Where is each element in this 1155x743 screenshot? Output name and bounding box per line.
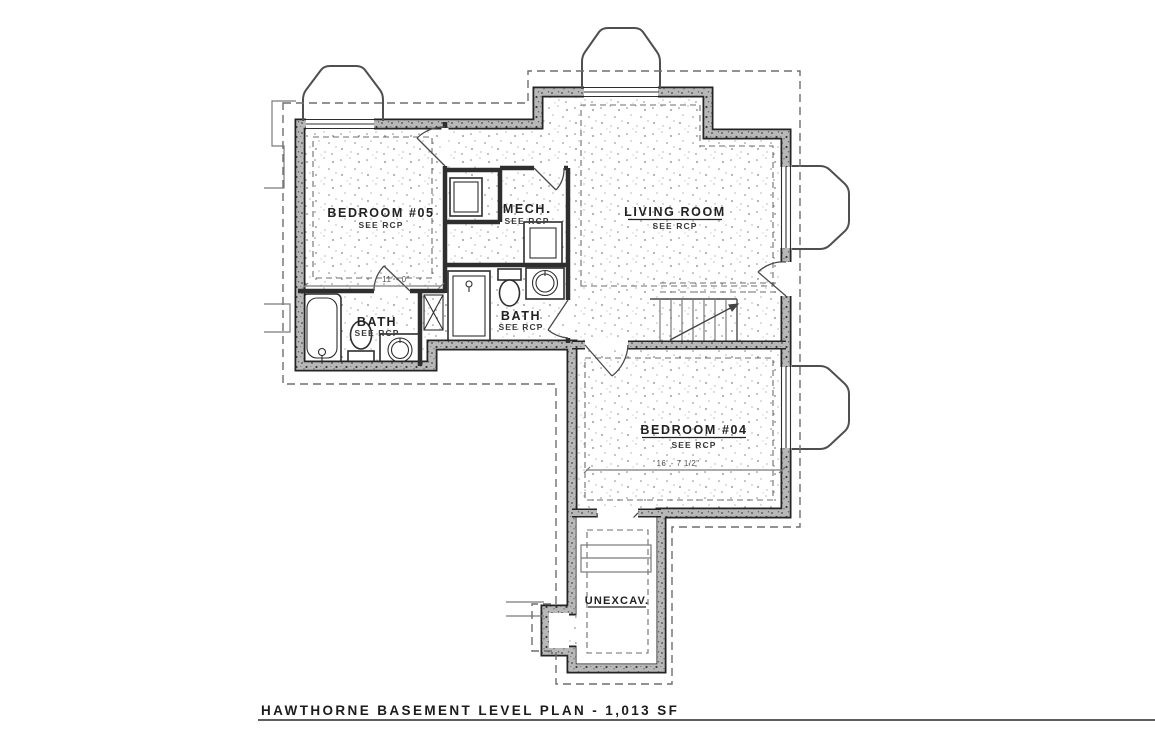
- drawing-sheet: 11' - 0" 16' - 7 1/2" BEDROOM #05 SEE RC…: [0, 0, 1155, 743]
- sink-center-fixture: [526, 268, 564, 299]
- room-label-living-room: LIVING ROOM: [624, 205, 726, 219]
- room-note-living-room: SEE RCP: [652, 221, 697, 231]
- room-label-bath-center: BATH: [501, 309, 541, 323]
- toilet-center-fixture: [498, 269, 521, 306]
- room-note-bath-left: SEE RCP: [354, 328, 399, 338]
- floor-plan-svg: 11' - 0" 16' - 7 1/2" BEDROOM #05 SEE RC…: [0, 0, 1155, 743]
- room-label-mech: MECH.: [503, 202, 551, 216]
- dim-bedroom04-label: 16' - 7 1/2": [657, 459, 700, 468]
- unexcavated-area: [506, 518, 657, 664]
- water-heater-fixture: [450, 178, 482, 216]
- title-block: HAWTHORNE BASEMENT LEVEL PLAN - 1,013 SF: [258, 703, 1155, 720]
- bathtub-fixture: [303, 294, 341, 366]
- shower-fixture: [448, 271, 490, 341]
- sink-left-fixture: [380, 334, 420, 365]
- room-note-bedroom05: SEE RCP: [358, 220, 403, 230]
- room-note-mech: SEE RCP: [504, 216, 549, 226]
- plan-title: HAWTHORNE BASEMENT LEVEL PLAN - 1,013 SF: [261, 703, 679, 718]
- room-note-bath-center: SEE RCP: [498, 322, 543, 332]
- room-note-bedroom04: SEE RCP: [671, 440, 716, 450]
- room-label-bath-left: BATH: [357, 315, 397, 329]
- room-label-bedroom04: BEDROOM #04: [640, 423, 747, 437]
- furnace-fixture: [524, 222, 562, 264]
- floor-texture: [300, 92, 786, 668]
- dim-bedroom05-label: 11' - 0": [382, 275, 409, 284]
- room-label-bedroom05: BEDROOM #05: [327, 206, 434, 220]
- adjacent-structure-lines: [264, 101, 296, 332]
- room-label-unexcavated: UNEXCAV.: [585, 595, 650, 607]
